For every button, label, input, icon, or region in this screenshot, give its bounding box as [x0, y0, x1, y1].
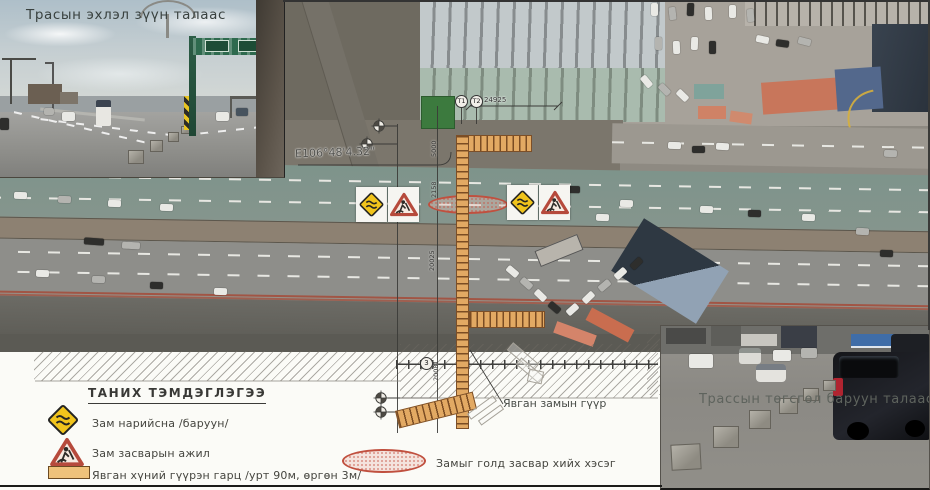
concrete-block [168, 132, 179, 142]
suv-wheel [905, 420, 925, 437]
dimension-span-top: 24925 [484, 96, 506, 104]
vehicle [689, 354, 713, 368]
white-car [756, 364, 786, 382]
bus [96, 100, 111, 126]
legend-road-work-icon [50, 437, 84, 467]
crane-jib [2, 58, 36, 60]
van [739, 348, 761, 364]
vehicle [44, 108, 54, 115]
far-gantry-pole [230, 96, 232, 118]
concrete-block [713, 426, 739, 448]
building [741, 334, 777, 346]
legend-item-label: Зам нарийсна /баруун/ [92, 417, 229, 430]
dimension-v4: 20081 [432, 360, 440, 381]
benchmark-symbols [360, 119, 389, 420]
legend-overpass-swatch [48, 466, 90, 479]
legend-item-label: Замыг голд засвар хийх хэсэг [436, 457, 616, 470]
suv-wheel [847, 422, 869, 440]
road-narrows-sign [507, 185, 538, 220]
sheet-top-rule [283, 0, 930, 2]
photo-route-start: Трасын эхлэл зүүн талаас [0, 0, 285, 178]
gps-coordinate-label: Е106°48'4.32" [295, 145, 375, 161]
road-work-icon [390, 192, 418, 217]
road-surface [0, 112, 285, 178]
building [28, 84, 62, 104]
road-narrows-sign [356, 187, 387, 222]
concrete-block [670, 443, 701, 471]
crane-mast [10, 58, 12, 104]
photo-route-end: Трассын төгсгөл баруун талаас [660, 325, 930, 490]
vehicle [216, 112, 229, 121]
streetlight-arm [45, 62, 53, 64]
plan-sheet: Т1 Т2 3 24925 5000 2158 20025 20081 Е106… [0, 0, 930, 490]
road-work-icon [541, 190, 569, 215]
suv-window [839, 356, 899, 378]
survey-marker-t2: Т2 [470, 95, 483, 108]
road-work-sign [388, 187, 419, 222]
building [666, 328, 706, 344]
sheet-bottom-rule [0, 485, 662, 487]
road-work-sign [539, 185, 570, 220]
photo-caption-bottom-right: Трассын төгсгөл баруун талаас [699, 392, 930, 407]
dimension-v1: 5000 [430, 140, 438, 157]
legend-item-label: Явган хүний гүүрэн гарц /урт 90м, өргөн … [92, 469, 361, 482]
vehicle [0, 118, 9, 130]
concrete-block [128, 150, 144, 164]
building [60, 92, 78, 104]
legend-repair-ellipse [342, 449, 426, 473]
legend-title: ТАНИХ ТЭМДЭГЛЭГЭЭ [88, 386, 266, 404]
bridge-mid-landing [469, 311, 545, 328]
gantry-sign-panel [238, 40, 258, 52]
concrete-block [749, 410, 771, 429]
legend-item-label: Зам засварын ажил [92, 447, 210, 460]
building [781, 326, 817, 348]
vehicle [801, 348, 817, 358]
survey-marker-t1: Т1 [455, 95, 468, 108]
bridge-top-stairs [466, 135, 532, 152]
photo-caption-top-left: Трасын эхлэл зүүн талаас [26, 7, 226, 23]
road-narrows-icon [358, 191, 385, 218]
legend-road-narrows-icon [46, 403, 80, 437]
vehicle [62, 112, 75, 121]
road-narrows-icon [509, 189, 536, 216]
dimension-v3: 20025 [428, 250, 436, 271]
dimension-v2: 2158 [430, 181, 438, 198]
rock-hillside [256, 0, 285, 178]
vehicle [773, 350, 791, 361]
legend: ТАНИХ ТЭМДЭГЛЭГЭЭ Зам нарийсна /баруун/ … [0, 380, 660, 490]
building [711, 326, 741, 346]
gantry-sign-panel [205, 40, 229, 52]
vehicle [236, 108, 248, 116]
concrete-block [823, 380, 836, 391]
concrete-block [150, 140, 163, 152]
